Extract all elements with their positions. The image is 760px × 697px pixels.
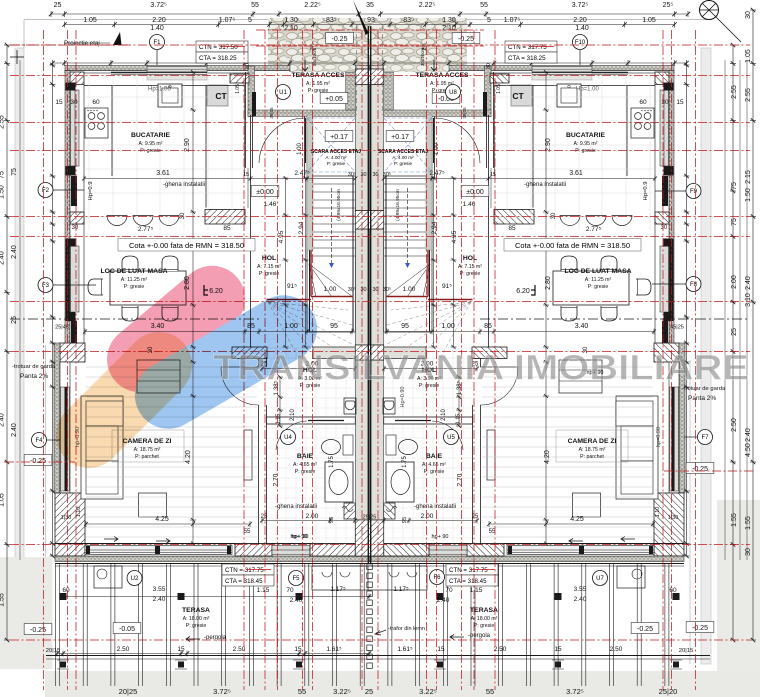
svg-text:F5: F5 <box>292 576 300 582</box>
svg-text:2.40: 2.40 <box>745 276 752 290</box>
svg-text:1|30: 1|30 <box>61 515 72 521</box>
svg-text:2.10: 2.10 <box>290 409 296 421</box>
svg-text:3.22⁵: 3.22⁵ <box>419 687 437 696</box>
svg-text:95: 95 <box>330 323 338 330</box>
svg-text:A: 9.95 m²: A: 9.95 m² <box>574 141 598 147</box>
svg-text:30: 30 <box>72 225 79 231</box>
svg-text:Hp=0.90: Hp=0.90 <box>400 387 406 408</box>
svg-text:-0.25: -0.25 <box>332 36 348 43</box>
svg-text:1.75: 1.75 <box>402 456 408 468</box>
svg-text:15: 15 <box>437 646 445 653</box>
svg-text:1.15: 1.15 <box>276 414 282 425</box>
svg-text:15: 15 <box>55 99 63 106</box>
svg-text:25: 25 <box>11 316 18 324</box>
svg-text:30⁵: 30⁵ <box>383 286 391 293</box>
svg-text:3.61: 3.61 <box>156 170 170 177</box>
svg-text:85: 85 <box>484 323 492 330</box>
svg-text:25|25: 25|25 <box>363 515 377 521</box>
svg-text:HOL: HOL <box>463 255 477 262</box>
svg-text:4.20: 4.20 <box>185 450 192 464</box>
svg-text:1.05: 1.05 <box>745 49 752 63</box>
svg-text:A: 1.95 m²: A: 1.95 m² <box>306 81 330 87</box>
svg-text:75: 75 <box>0 171 6 179</box>
svg-text:BAIE: BAIE <box>297 453 314 460</box>
svg-text:20|25: 20|25 <box>119 687 138 696</box>
svg-text:A: 18.75 m²: A: 18.75 m² <box>579 447 606 453</box>
svg-text:1.55: 1.55 <box>731 513 738 527</box>
svg-text:P: gresie: P: gresie <box>259 271 280 277</box>
svg-text:1.17⁵: 1.17⁵ <box>330 586 346 593</box>
svg-text:2.50: 2.50 <box>117 646 130 653</box>
svg-text:30: 30 <box>745 11 752 19</box>
svg-text:-0.25: -0.25 <box>692 625 708 632</box>
svg-text:6.20: 6.20 <box>516 288 530 295</box>
svg-text:+0.05: +0.05 <box>325 96 343 103</box>
svg-text:U7: U7 <box>596 576 604 582</box>
svg-text:1.05: 1.05 <box>496 84 502 94</box>
svg-text:5: 5 <box>248 17 252 24</box>
svg-text:U5: U5 <box>447 435 455 441</box>
svg-text:95: 95 <box>401 323 409 330</box>
svg-text:70: 70 <box>445 587 453 594</box>
svg-text:-0.25: -0.25 <box>458 36 474 43</box>
svg-text:30⁵: 30⁵ <box>348 171 356 178</box>
svg-text:3.55: 3.55 <box>153 586 166 593</box>
svg-text:91⁵: 91⁵ <box>287 283 297 290</box>
svg-text:CT: CT <box>512 91 524 101</box>
svg-text:80: 80 <box>486 63 492 69</box>
svg-text:Panta 2%: Panta 2% <box>688 395 716 402</box>
svg-text:-0.25: -0.25 <box>692 466 708 473</box>
svg-text:2.77⁵: 2.77⁵ <box>138 226 154 233</box>
svg-text:4.20: 4.20 <box>544 450 551 464</box>
svg-text:35: 35 <box>366 2 374 9</box>
svg-text:2.22⁵: 2.22⁵ <box>304 2 321 9</box>
svg-text:Hp=0.9: Hp=0.9 <box>88 182 94 201</box>
svg-text:2.40: 2.40 <box>574 596 587 603</box>
svg-text:BAIE: BAIE <box>426 453 443 460</box>
svg-text:1.00: 1.00 <box>297 143 303 155</box>
svg-text:15: 15 <box>294 646 302 653</box>
svg-text:30⁵: 30⁵ <box>383 171 391 178</box>
svg-text:60: 60 <box>639 99 647 106</box>
svg-text:30|15: 30|15 <box>269 107 274 119</box>
svg-text:Hp=1.00: Hp=1.00 <box>576 87 600 93</box>
svg-text:85: 85 <box>508 225 516 232</box>
svg-text:15: 15 <box>676 99 684 106</box>
svg-text:75: 75 <box>731 182 738 190</box>
svg-text:2.40: 2.40 <box>11 245 18 259</box>
svg-text:hp+ 90: hp+ 90 <box>432 534 449 540</box>
svg-text:-trotuar de garda: -trotuar de garda <box>12 364 56 370</box>
svg-text:P: gresie: P: gresie <box>460 271 481 277</box>
svg-text:CT: CT <box>215 91 227 101</box>
svg-text:Proiectie etaj: Proiectie etaj <box>64 40 100 47</box>
svg-text:P: parchet: P: parchet <box>580 454 604 460</box>
svg-text:93: 93 <box>367 17 375 24</box>
svg-text:4.25: 4.25 <box>155 516 169 523</box>
svg-text:A: 4.00 m²: A: 4.00 m² <box>392 155 414 160</box>
svg-text:P: gresie: P: gresie <box>124 284 145 290</box>
svg-text:3.72⁵: 3.72⁵ <box>213 687 231 696</box>
svg-text:15: 15 <box>177 646 185 653</box>
svg-text:2.77⁵: 2.77⁵ <box>586 226 602 233</box>
svg-text:TERASA: TERASA <box>182 607 210 614</box>
svg-text:LOC DE LUAT MASA: LOC DE LUAT MASA <box>564 268 631 275</box>
svg-text:4.50: 4.50 <box>745 443 752 457</box>
svg-text:CTA = 318.45: CTA = 318.45 <box>449 578 487 585</box>
svg-text:1.07⁵: 1.07⁵ <box>219 17 236 24</box>
svg-text:95: 95 <box>329 517 335 523</box>
svg-text:25: 25 <box>731 328 738 336</box>
svg-text:55: 55 <box>251 2 259 9</box>
svg-text:1.15: 1.15 <box>257 587 270 594</box>
svg-text:83⁵: 83⁵ <box>326 17 337 24</box>
svg-text:F7: F7 <box>701 435 709 441</box>
svg-text:1.50: 1.50 <box>745 188 752 202</box>
svg-text:2.00: 2.00 <box>421 513 434 520</box>
svg-text:1.55: 1.55 <box>745 516 752 530</box>
svg-text:hp+ 90: hp+ 90 <box>292 534 309 540</box>
svg-text:2.70: 2.70 <box>457 473 464 486</box>
svg-text:1.30: 1.30 <box>442 17 456 24</box>
svg-text:5: 5 <box>487 17 491 24</box>
svg-text:1.00: 1.00 <box>324 286 337 293</box>
svg-text:A: 4.65 m²: A: 4.65 m² <box>422 462 446 468</box>
svg-text:LOC DE LUAT MASA: LOC DE LUAT MASA <box>100 268 167 275</box>
svg-text:60: 60 <box>669 587 677 594</box>
svg-text:15: 15 <box>554 646 562 653</box>
svg-text:30: 30 <box>180 212 186 219</box>
svg-text:-ghena instalatii: -ghena instalatii <box>275 504 317 510</box>
svg-text:1.00: 1.00 <box>403 286 416 293</box>
svg-text:F4: F4 <box>35 438 43 444</box>
svg-text:25|20: 25|20 <box>659 687 678 696</box>
svg-text:U8: U8 <box>449 90 457 96</box>
svg-text:2.20: 2.20 <box>573 17 587 24</box>
svg-text:2.90: 2.90 <box>184 138 191 152</box>
svg-text:P: gresie: P: gresie <box>474 623 495 629</box>
svg-text:3.55: 3.55 <box>574 586 587 593</box>
svg-text:P: gresie: P: gresie <box>327 161 346 166</box>
svg-text:30|15: 30|15 <box>462 107 467 119</box>
svg-text:A: 9.95 m²: A: 9.95 m² <box>139 141 163 147</box>
svg-text:P: gresie: P: gresie <box>575 148 596 154</box>
svg-text:1.50: 1.50 <box>0 185 6 199</box>
svg-text:-pergola: -pergola <box>468 633 491 639</box>
svg-text:2.70: 2.70 <box>273 473 280 486</box>
svg-text:2.40: 2.40 <box>437 597 450 604</box>
svg-text:-ghena instalatii: -ghena instalatii <box>414 504 456 510</box>
svg-text:75: 75 <box>731 218 738 226</box>
svg-text:25: 25 <box>54 2 62 9</box>
svg-text:A: 18.00 m²: A: 18.00 m² <box>471 616 498 622</box>
svg-text:2.40: 2.40 <box>11 423 18 437</box>
svg-text:20|15: 20|15 <box>679 648 693 654</box>
svg-text:CTA = 318.25: CTA = 318.25 <box>508 55 546 62</box>
svg-text:2.50: 2.50 <box>494 646 507 653</box>
svg-text:2.94: 2.94 <box>298 221 305 234</box>
svg-text:1.15: 1.15 <box>456 414 462 425</box>
svg-text:Hp=0.9: Hp=0.9 <box>643 182 649 201</box>
svg-text:2.40: 2.40 <box>153 596 166 603</box>
svg-text:P: gresie: P: gresie <box>588 284 609 290</box>
svg-text:60: 60 <box>62 587 70 594</box>
svg-text:1|30: 1|30 <box>668 515 679 521</box>
svg-text:3.61: 3.61 <box>569 170 583 177</box>
svg-text:-0.25: -0.25 <box>637 626 653 633</box>
svg-text:-0.05: -0.05 <box>119 626 135 633</box>
svg-text:2.47⁵: 2.47⁵ <box>429 170 445 177</box>
svg-text:3.10: 3.10 <box>745 293 752 307</box>
svg-text:1.40: 1.40 <box>150 25 164 32</box>
svg-text:1.46: 1.46 <box>264 201 277 208</box>
svg-text:-trafor din lemn: -trafor din lemn <box>388 626 425 632</box>
svg-text:(4.99x16.95cm: (4.99x16.95cm <box>336 189 342 221</box>
svg-text:3.72⁵: 3.72⁵ <box>150 2 167 9</box>
svg-text:A: 11.25 m²: A: 11.25 m² <box>585 277 612 283</box>
svg-text:1.00: 1.00 <box>441 323 455 330</box>
svg-text:45|25: 45|25 <box>670 325 684 331</box>
svg-text:83⁵: 83⁵ <box>403 17 414 24</box>
svg-text:30: 30 <box>70 99 78 106</box>
svg-text:(4.99x16.95cm: (4.99x16.95cm <box>395 189 401 221</box>
svg-text:1.05: 1.05 <box>83 17 97 24</box>
svg-text:BUCATARIE: BUCATARIE <box>566 132 605 139</box>
svg-text:±0.00: ±0.00 <box>466 189 484 196</box>
svg-text:1.05: 1.05 <box>235 84 241 94</box>
svg-text:30: 30 <box>661 225 668 231</box>
svg-text:30: 30 <box>661 99 669 106</box>
svg-text:1.07⁵: 1.07⁵ <box>504 17 521 24</box>
svg-text:2.55: 2.55 <box>0 115 6 129</box>
svg-text:2.94: 2.94 <box>431 221 438 234</box>
svg-text:A: 18.75 m²: A: 18.75 m² <box>134 447 161 453</box>
svg-text:A: 11.25 m²: A: 11.25 m² <box>121 277 148 283</box>
svg-text:30x10cm: 30x10cm <box>420 48 425 67</box>
svg-text:1.30: 1.30 <box>284 17 298 24</box>
svg-text:F6: F6 <box>433 575 441 581</box>
svg-text:2.90: 2.90 <box>545 138 552 152</box>
svg-text:25: 25 <box>472 514 479 520</box>
svg-text:4.25: 4.25 <box>570 516 584 523</box>
svg-text:1.05: 1.05 <box>642 17 656 24</box>
svg-text:Cota +-0.00 fata de RMN = 318.: Cota +-0.00 fata de RMN = 318.50 <box>515 241 630 250</box>
svg-text:20|15: 20|15 <box>46 648 60 654</box>
svg-text:1.17⁵: 1.17⁵ <box>393 586 409 593</box>
svg-text:1.75: 1.75 <box>329 456 335 468</box>
svg-text:P: gresie: P: gresie <box>140 148 161 154</box>
svg-text:55: 55 <box>486 687 494 696</box>
svg-text:55: 55 <box>244 529 251 535</box>
svg-text:1.00: 1.00 <box>434 143 440 155</box>
svg-text:2.40: 2.40 <box>0 413 6 427</box>
svg-text:3.40: 3.40 <box>575 323 589 330</box>
svg-text:1.61⁵: 1.61⁵ <box>326 646 342 653</box>
svg-text:1.10: 1.10 <box>76 507 82 518</box>
svg-text:2.80: 2.80 <box>545 276 552 290</box>
svg-text:95: 95 <box>402 517 408 523</box>
svg-text:1.55: 1.55 <box>0 593 6 607</box>
svg-text:-ghena instalatii: -ghena instalatii <box>163 182 205 188</box>
svg-text:3.72⁵: 3.72⁵ <box>566 687 584 696</box>
svg-text:2.50: 2.50 <box>610 646 623 653</box>
svg-text:75: 75 <box>11 168 18 176</box>
svg-text:CTN = 317.75: CTN = 317.75 <box>225 567 264 574</box>
svg-text:BUCATARIE: BUCATARIE <box>131 132 170 139</box>
svg-text:HOL: HOL <box>262 255 276 262</box>
svg-text:1.40: 1.40 <box>575 25 589 32</box>
svg-text:Panta 2%: Panta 2% <box>20 373 48 380</box>
svg-text:2.55: 2.55 <box>745 88 752 102</box>
svg-text:F9: F9 <box>690 189 698 195</box>
svg-text:60: 60 <box>92 99 100 106</box>
svg-text:1.61⁵: 1.61⁵ <box>397 646 413 653</box>
svg-text:A: 18.00 m²: A: 18.00 m² <box>183 616 210 622</box>
svg-text:2.10: 2.10 <box>442 25 456 32</box>
svg-text:2.50: 2.50 <box>731 418 738 432</box>
svg-text:2.10: 2.10 <box>284 25 298 32</box>
svg-text:A: 4.00 m²: A: 4.00 m² <box>325 155 347 160</box>
svg-text:U4: U4 <box>284 435 292 441</box>
svg-text:85: 85 <box>223 225 231 232</box>
svg-text:P: parchet: P: parchet <box>135 454 159 460</box>
svg-text:25: 25 <box>261 514 268 520</box>
svg-text:30: 30 <box>360 287 366 293</box>
svg-text:TRANSILVANIA IMOBILIARE: TRANSILVANIA IMOBILIARE <box>213 348 749 388</box>
svg-text:CTN = 317.75: CTN = 317.75 <box>449 567 488 574</box>
svg-text:2.00: 2.00 <box>731 275 738 289</box>
svg-text:2.55: 2.55 <box>731 85 738 99</box>
svg-text:30⁵: 30⁵ <box>348 286 356 293</box>
svg-text:P: gresie: P: gresie <box>394 161 413 166</box>
svg-text:2.20: 2.20 <box>152 17 166 24</box>
svg-text:80: 80 <box>245 63 251 69</box>
svg-text:CTA = 318.25: CTA = 318.25 <box>199 55 237 62</box>
svg-text:U2: U2 <box>131 576 139 582</box>
svg-text:Hp=1.00: Hp=1.00 <box>148 87 172 93</box>
svg-text:Cota +-0.00 fata de RMN = 318.: Cota +-0.00 fata de RMN = 318.50 <box>129 241 244 250</box>
svg-text:2.40: 2.40 <box>0 251 6 265</box>
svg-text:3.22⁵: 3.22⁵ <box>333 687 351 696</box>
svg-text:25: 25 <box>365 687 373 696</box>
svg-text:F8: F8 <box>690 282 698 288</box>
svg-text:55: 55 <box>298 687 306 696</box>
svg-text:CAMERA DE ZI: CAMERA DE ZI <box>568 438 617 445</box>
svg-text:2.40: 2.40 <box>745 428 752 442</box>
svg-text:25|45: 25|45 <box>55 325 69 331</box>
svg-text:2.15: 2.15 <box>745 170 752 184</box>
svg-text:25⁵: 25⁵ <box>663 2 674 9</box>
svg-text:1.10: 1.10 <box>655 507 661 518</box>
svg-text:U1: U1 <box>279 90 287 96</box>
svg-text:+0.17: +0.17 <box>391 134 409 141</box>
svg-text:-ghena instalatii: -ghena instalatii <box>524 182 566 188</box>
svg-text:1.15: 1.15 <box>470 587 483 594</box>
svg-text:30: 30 <box>551 212 557 219</box>
svg-text:2.10: 2.10 <box>441 409 447 421</box>
svg-text:+0.17: +0.17 <box>330 134 348 141</box>
svg-text:3.72⁵: 3.72⁵ <box>572 2 589 9</box>
svg-text:91⁵: 91⁵ <box>442 283 452 290</box>
svg-text:P: gresie: P: gresie <box>186 623 207 629</box>
svg-text:A: 4.65 m²: A: 4.65 m² <box>293 462 317 468</box>
svg-text:2.40: 2.40 <box>290 597 303 604</box>
svg-text:55: 55 <box>480 2 488 9</box>
svg-text:1.05: 1.05 <box>0 493 6 507</box>
svg-text:30: 30 <box>360 172 366 178</box>
svg-text:hp=0.90: hp=0.90 <box>656 427 662 447</box>
svg-text:70: 70 <box>286 587 294 594</box>
svg-text:30: 30 <box>745 548 752 556</box>
svg-text:2.22⁵: 2.22⁵ <box>419 2 436 9</box>
